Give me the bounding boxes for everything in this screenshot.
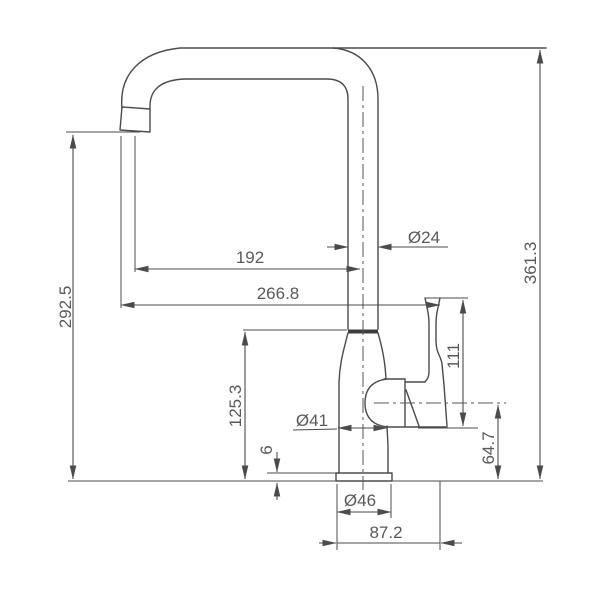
spout-inner-profile	[150, 79, 348, 329]
dim-label-overall-height: 361.3	[521, 242, 540, 285]
dim-body-diameter: Ø41	[293, 411, 387, 430]
base-flange	[336, 473, 392, 481]
dim-label-handle-height: 111	[444, 343, 463, 369]
dim-body-height: 125.3	[226, 330, 347, 479]
dim-base-plate-thickness: 6	[257, 445, 336, 500]
dim-label-spout-tube-diameter: Ø24	[408, 228, 440, 247]
drawing-canvas: 292.5 192 266.8 Ø24 361.3 111 125.3	[0, 0, 600, 600]
spout-aerator-tip	[120, 107, 150, 132]
drawing-page: 292.5 192 266.8 Ø24 361.3 111 125.3	[0, 0, 600, 600]
spout-right-bend-outer	[333, 48, 378, 329]
dim-label-spout-reach: 192	[236, 248, 264, 267]
dim-overall-reach: 266.8	[121, 136, 440, 308]
dim-label-body-diameter: Ø41	[296, 411, 328, 430]
dim-pivot-height: 64.7	[479, 405, 498, 479]
body-right-profile-lower	[387, 426, 388, 473]
dim-handle-height: 111	[418, 298, 478, 428]
dim-overall-height: 361.3	[521, 50, 540, 479]
dim-label-spout-outlet-height: 292.5	[56, 286, 75, 329]
body-left-profile	[339, 333, 348, 473]
dim-label-pivot-height: 64.7	[479, 431, 498, 464]
dim-label-body-height: 125.3	[226, 385, 245, 428]
body-right-profile-upper	[378, 333, 386, 379]
dim-label-overall-reach: 266.8	[257, 284, 300, 303]
spout-outer-profile	[122, 48, 546, 108]
dim-label-base-to-handle-reach: 87.2	[369, 523, 402, 542]
dim-label-base-plate-thickness: 6	[257, 445, 276, 454]
dim-spout-tube-diameter: Ø24	[327, 228, 448, 247]
dim-spout-reach: 192	[135, 136, 360, 272]
dim-label-base-diameter: Ø46	[344, 491, 376, 510]
